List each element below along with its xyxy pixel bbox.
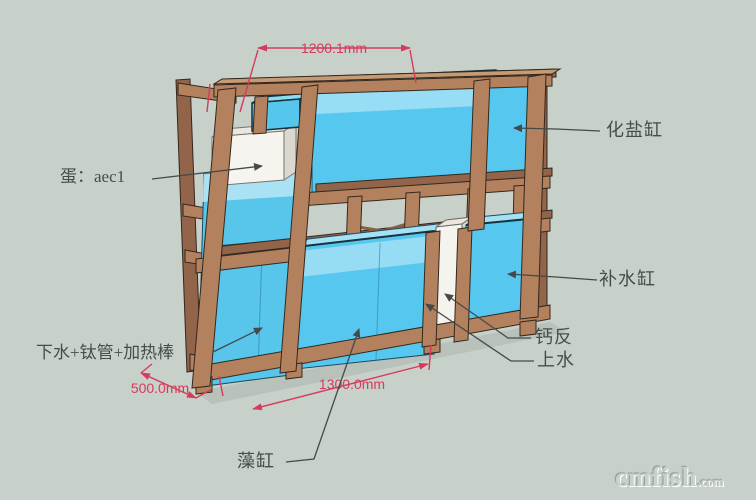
aquarium-rack-drawing: 1200.1mm 500.0mm 1300.0mm: [0, 0, 756, 500]
label-calcium-reactor: 钙反: [535, 328, 573, 348]
watermark-brand: cmfish: [615, 462, 698, 492]
dim-depth: 500.0mm: [131, 380, 189, 396]
small-post: [253, 96, 268, 134]
dim-bottom-width: 1300.0mm: [319, 376, 385, 392]
dim-top-width: 1200.1mm: [301, 40, 367, 56]
label-salt-tank: 化盐缸: [606, 121, 663, 141]
label-topup-tank: 补水缸: [599, 270, 656, 290]
watermark-domain: .com: [698, 474, 724, 489]
label-algae-tank: 藻缸: [237, 452, 275, 472]
label-skimmer: 蛋：aec1: [60, 168, 125, 187]
watermark: cmfish.com: [615, 462, 724, 493]
label-drain-note: 下水+钛管+加热棒: [36, 344, 174, 363]
label-water-up: 上水: [537, 351, 575, 371]
aquarium-plan-canvas: 1200.1mm 500.0mm 1300.0mm 化盐缸 蛋：aec1 补水缸…: [0, 0, 756, 500]
